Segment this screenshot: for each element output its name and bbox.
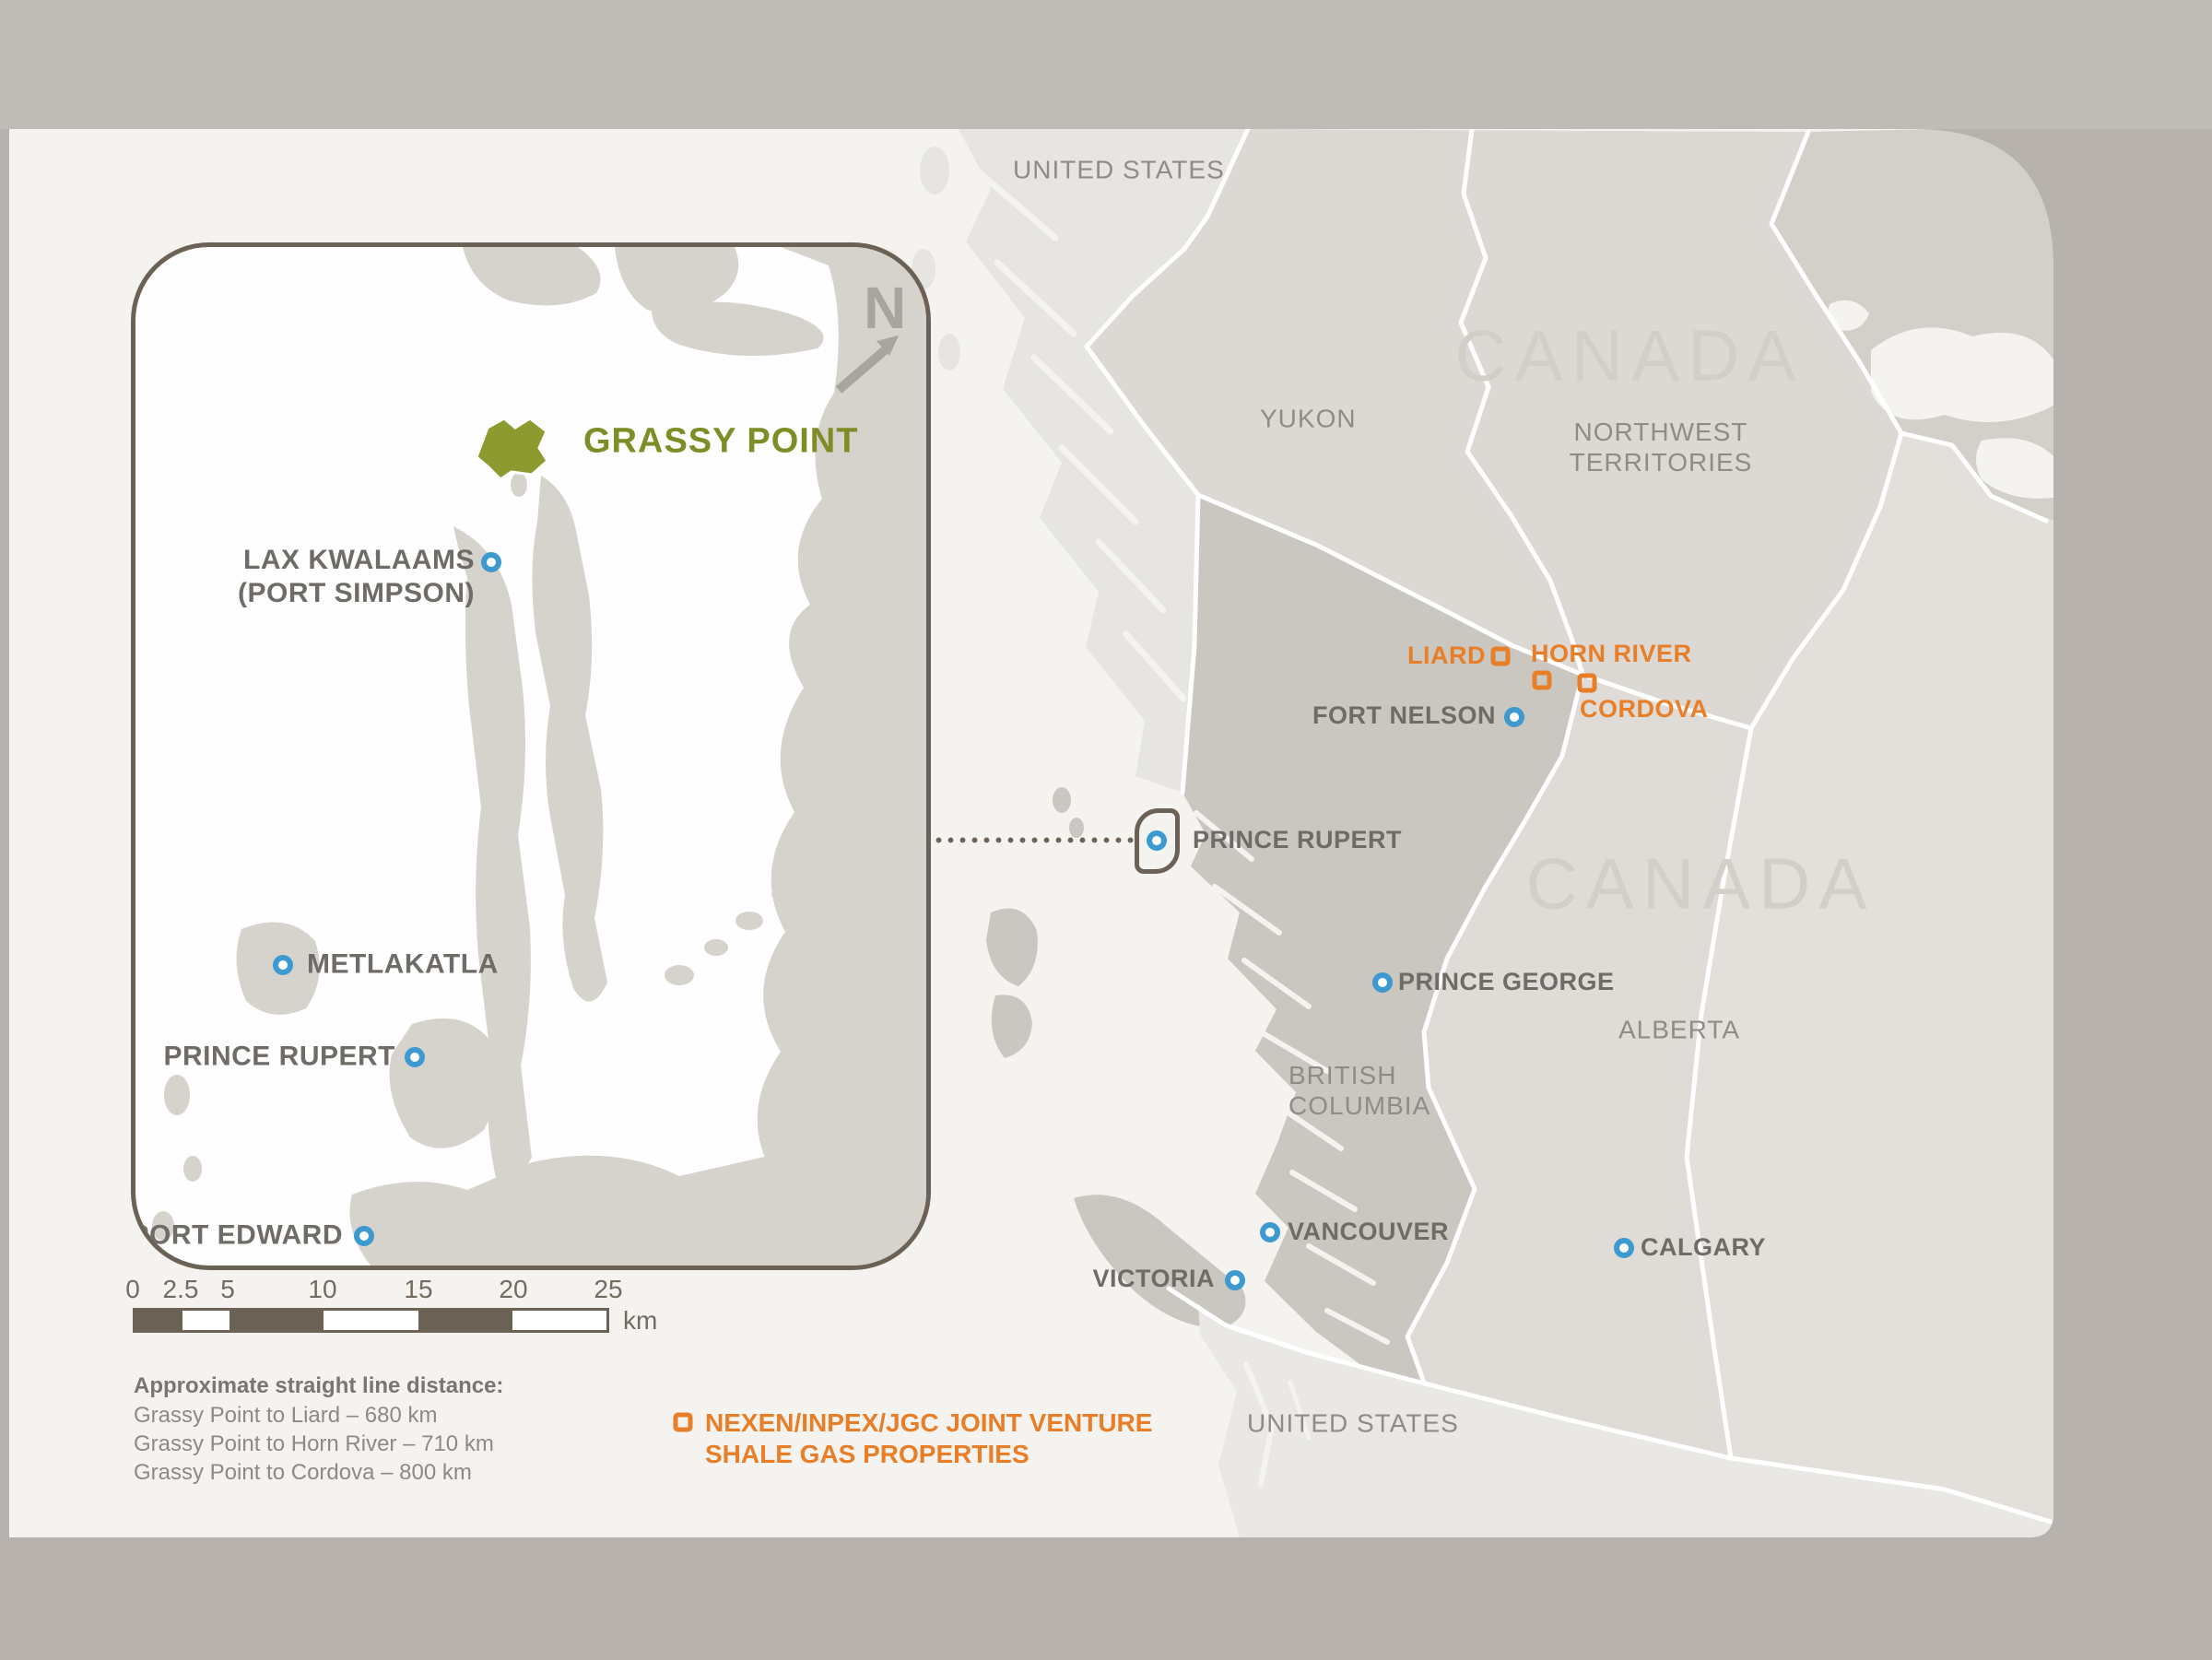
fort-nelson-marker (1504, 707, 1524, 727)
label-united-states-bottom: UNITED STATES (1247, 1408, 1459, 1438)
legend-shale-square-icon (674, 1413, 693, 1432)
label-nwt-line1: NORTHWEST (1570, 417, 1753, 447)
label-yukon: YUKON (1260, 404, 1357, 433)
label-prince-george: PRINCE GEORGE (1398, 968, 1615, 996)
label-liard: LIARD (1407, 642, 1486, 670)
label-calgary: CALGARY (1641, 1233, 1766, 1262)
scale-tick-25: 25 (594, 1275, 622, 1304)
label-vancouver: VANCOUVER (1288, 1218, 1449, 1246)
label-alberta: ALBERTA (1618, 1015, 1740, 1044)
label-nwt-line2: TERRITORIES (1570, 447, 1753, 477)
prince-george-marker (1372, 972, 1393, 993)
label-prince-rupert-main: PRINCE RUPERT (1193, 826, 1402, 854)
label-northwest-territories: NORTHWEST TERRITORIES (1570, 417, 1753, 477)
scale-tick-0: 0 (125, 1275, 140, 1304)
lax-kwalaams-marker (481, 552, 501, 572)
scale-bar-segments (133, 1308, 609, 1333)
distance-notes-title: Approximate straight line distance: (134, 1373, 503, 1399)
label-cordova: CORDOVA (1580, 695, 1709, 724)
grassy-point-site-shape (477, 418, 547, 479)
prince-rupert-inset-marker (405, 1047, 425, 1067)
label-horn-river: HORN RIVER (1531, 640, 1692, 668)
inset-leader-dotted-line (933, 837, 1134, 843)
label-lax-kwalaams: LAX KWALAAMS (PORT SIMPSON) (238, 544, 475, 610)
label-british-columbia: BRITISH COLUMBIA (1288, 1060, 1430, 1121)
horn-river-site-marker (1533, 671, 1552, 690)
scale-tick-2-5: 2.5 (163, 1275, 199, 1304)
metlakatla-marker (273, 955, 293, 975)
port-edward-marker (354, 1226, 374, 1246)
distance-note-cordova: Grassy Point to Cordova – 800 km (134, 1460, 472, 1486)
canada-watermark-north: CANADA (1454, 314, 1804, 398)
scale-tick-5: 5 (220, 1275, 235, 1304)
label-grassy-point: GRASSY POINT (583, 422, 858, 462)
label-victoria: VICTORIA (1092, 1265, 1215, 1293)
scale-unit: km (623, 1306, 657, 1336)
label-united-states-top: UNITED STATES (1013, 155, 1225, 184)
prince-rupert-marker (1147, 830, 1167, 851)
legend-text: NEXEN/INPEX/JGC JOINT VENTURE SHALE GAS … (705, 1407, 1152, 1470)
cordova-site-marker (1578, 674, 1597, 693)
canada-watermark-south: CANADA (1525, 842, 1875, 926)
distance-note-horn-river: Grassy Point to Horn River – 710 km (134, 1431, 494, 1457)
label-lax-kwalaams-line2: (PORT SIMPSON) (238, 577, 475, 610)
map-infographic: CANADA CANADA UNITED STATES YUKON NORTHW… (0, 0, 2212, 1660)
vancouver-marker (1260, 1222, 1280, 1242)
victoria-marker (1225, 1270, 1245, 1290)
scale-tick-15: 15 (404, 1275, 432, 1304)
legend-line2: SHALE GAS PROPERTIES (705, 1439, 1152, 1470)
inset-map: N GRASSY POINT LAX KWALAAMS (PORT SIMPSO… (131, 242, 931, 1270)
label-port-edward: PORT EDWARD (131, 1219, 343, 1251)
label-fort-nelson: FORT NELSON (1312, 701, 1496, 730)
calgary-marker (1614, 1238, 1634, 1258)
inset-artwork (135, 247, 926, 1266)
scale-tick-10: 10 (308, 1275, 336, 1304)
label-prince-rupert-inset: PRINCE RUPERT (163, 1041, 395, 1072)
label-lax-kwalaams-line1: LAX KWALAAMS (238, 544, 475, 577)
scale-tick-20: 20 (499, 1275, 527, 1304)
compass-n: N (864, 278, 906, 337)
liard-site-marker (1491, 647, 1511, 666)
label-metlakatla: METLAKATLA (307, 948, 499, 980)
distance-note-liard: Grassy Point to Liard – 680 km (134, 1403, 437, 1429)
legend-line1: NEXEN/INPEX/JGC JOINT VENTURE (705, 1407, 1152, 1439)
label-bc-line1: BRITISH (1288, 1060, 1430, 1090)
label-bc-line2: COLUMBIA (1288, 1090, 1430, 1121)
